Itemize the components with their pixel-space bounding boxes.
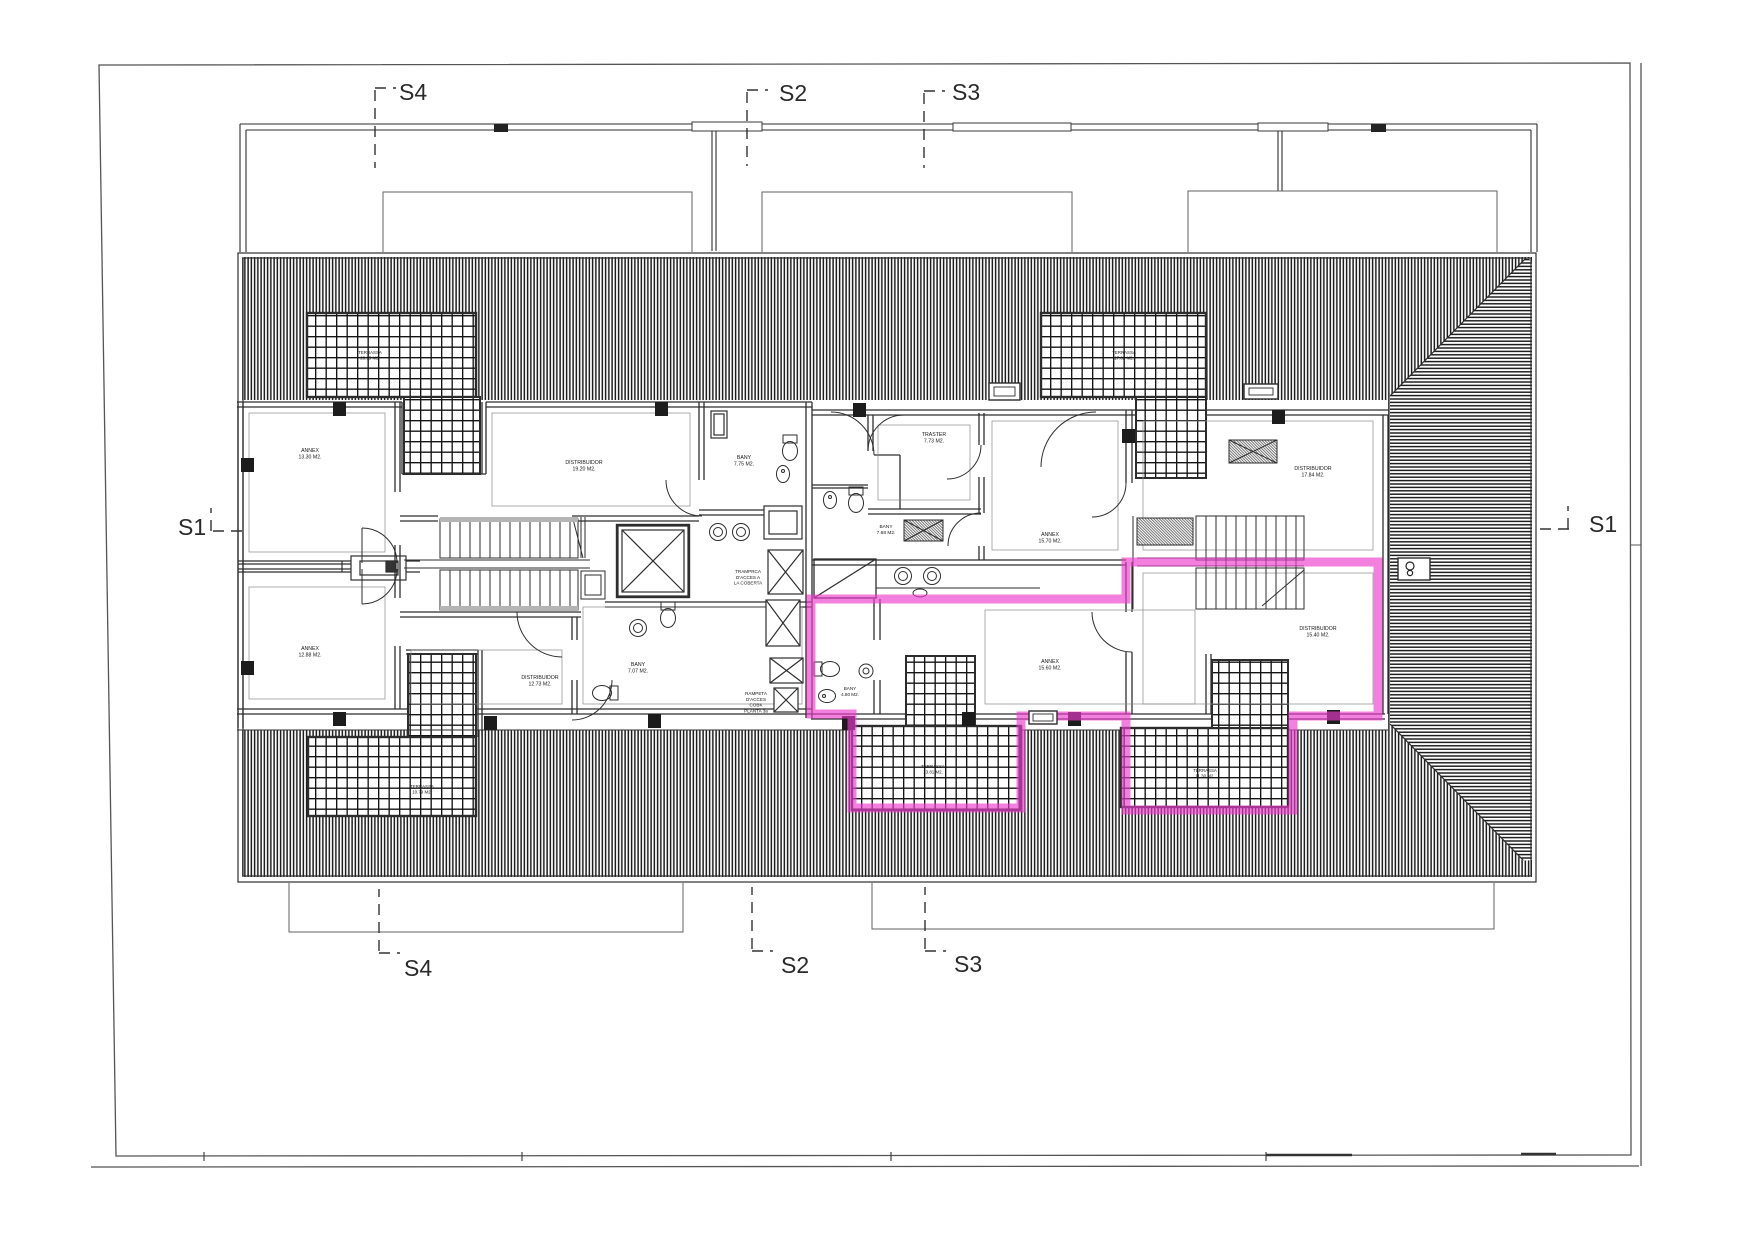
svg-text:ANNEX13.30 M2.: ANNEX13.30 M2. <box>298 448 321 460</box>
svg-text:TRASTER7.73 M2.: TRASTER7.73 M2. <box>922 432 946 444</box>
svg-text:BANY4.80 M2.: BANY4.80 M2. <box>841 686 859 697</box>
svg-text:TERRASSA10.79 M2.: TERRASSA10.79 M2. <box>410 784 434 795</box>
svg-text:TERRASSA26.95 M2.: TERRASSA26.95 M2. <box>358 350 382 361</box>
svg-text:S3: S3 <box>954 951 982 977</box>
svg-text:TRAMPRCAD'ACCES ALA COBERTA: TRAMPRCAD'ACCES ALA COBERTA <box>734 569 763 586</box>
svg-text:S2: S2 <box>781 952 809 978</box>
svg-text:BANY7.75 M2.: BANY7.75 M2. <box>734 455 754 467</box>
svg-text:S4: S4 <box>399 79 427 105</box>
svg-text:ANNEX12.88 M2.: ANNEX12.88 M2. <box>298 646 321 658</box>
svg-text:ANNEX15.70 M2.: ANNEX15.70 M2. <box>1038 532 1061 544</box>
svg-text:TERRASSA11.30 M2.: TERRASSA11.30 M2. <box>1193 768 1217 779</box>
svg-text:S1: S1 <box>178 514 206 540</box>
svg-text:S3: S3 <box>952 79 980 105</box>
svg-text:TERRASSA13.81 M2.: TERRASSA13.81 M2. <box>921 764 945 775</box>
svg-text:ANNEX15.60 M2.: ANNEX15.60 M2. <box>1038 659 1061 671</box>
svg-text:S2: S2 <box>779 80 807 106</box>
svg-text:TERRASSA17.02 M2.: TERRASSA17.02 M2. <box>1112 350 1136 361</box>
svg-text:S1: S1 <box>1589 511 1617 537</box>
svg-text:S4: S4 <box>404 955 432 981</box>
svg-text:BANY7.07 M2.: BANY7.07 M2. <box>628 662 648 674</box>
